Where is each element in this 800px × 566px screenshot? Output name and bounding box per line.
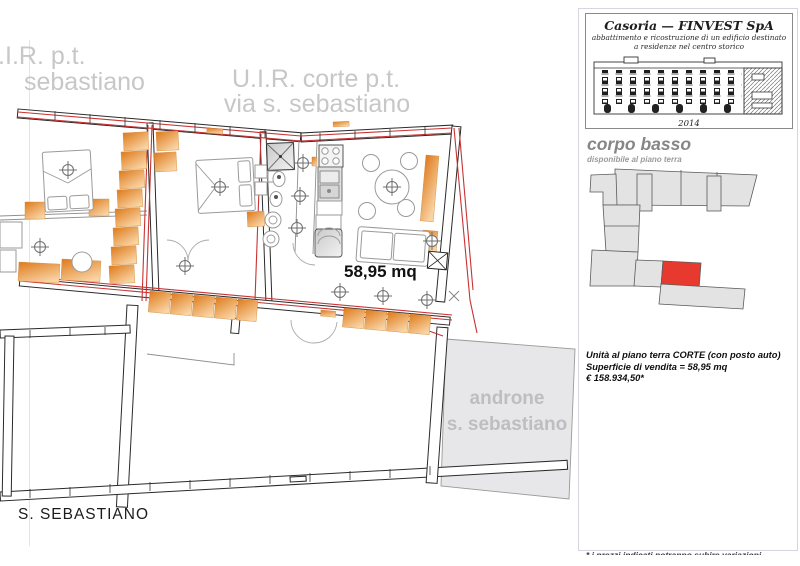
kitchen-strip	[315, 145, 343, 257]
bed-double-left	[42, 150, 93, 212]
survey-marker-icon	[288, 219, 306, 237]
section-subheading: disponibile al piano terra	[587, 155, 691, 164]
survey-marker-icon	[176, 257, 194, 275]
label-uir-pt-line1: U.I.R. p.t.	[0, 42, 86, 70]
survey-marker-icon	[331, 283, 349, 301]
androne-label-line1: androne	[470, 388, 545, 409]
project-subtitle-line2: a residenze nel centro storico	[586, 42, 792, 51]
unit-price: € 158.934,50*	[586, 373, 791, 385]
site-plan-key	[580, 166, 798, 318]
project-year: 2014	[586, 119, 792, 129]
label-uir-corte-line1: U.I.R. corte p.t.	[232, 65, 400, 93]
clipped-footnote: * i prezzi indicati potranno subire vari…	[586, 550, 791, 555]
label-uir-corte-line2: via s. sebastiano	[224, 90, 410, 118]
project-subtitle-line1: abbattimento e ricostruzione di un edifi…	[586, 33, 792, 42]
street-label: S. SEBASTIANO	[18, 506, 149, 523]
section-corpo-basso: corpo basso disponibile al piano terra	[587, 135, 691, 164]
unit-detail-line1: Unità al piano terra CORTE (con posto au…	[586, 350, 791, 362]
floor-plan-drawing: androne s. sebastiano	[0, 0, 578, 566]
androne-label-line2: s. sebastiano	[447, 414, 567, 435]
sofa	[356, 227, 430, 267]
survey-marker-icon	[418, 291, 436, 309]
shower	[267, 143, 295, 171]
unit-detail-line2: Superficie di vendita = 58,95 mq	[586, 362, 791, 374]
floorplan-sheet: androne s. sebastiano	[0, 0, 800, 566]
area-label: 58,95 mq	[344, 262, 417, 281]
building-elevation-drawing	[586, 54, 790, 118]
survey-marker-icon	[294, 154, 312, 172]
project-title: Casoria — FINVEST SpA	[586, 18, 792, 33]
section-heading: corpo basso	[587, 135, 691, 153]
survey-marker-icon	[291, 187, 309, 205]
survey-marker-icon	[374, 287, 392, 305]
crossed-box-marker	[427, 251, 447, 270]
project-header-box: Casoria — FINVEST SpA abbattimento e ric…	[585, 13, 793, 129]
unit-details: Unità al piano terra CORTE (con posto au…	[586, 350, 791, 385]
x-mark-icon	[449, 291, 459, 301]
survey-marker-icon	[31, 238, 49, 256]
label-uir-pt-line2: sebastiano	[24, 68, 145, 96]
